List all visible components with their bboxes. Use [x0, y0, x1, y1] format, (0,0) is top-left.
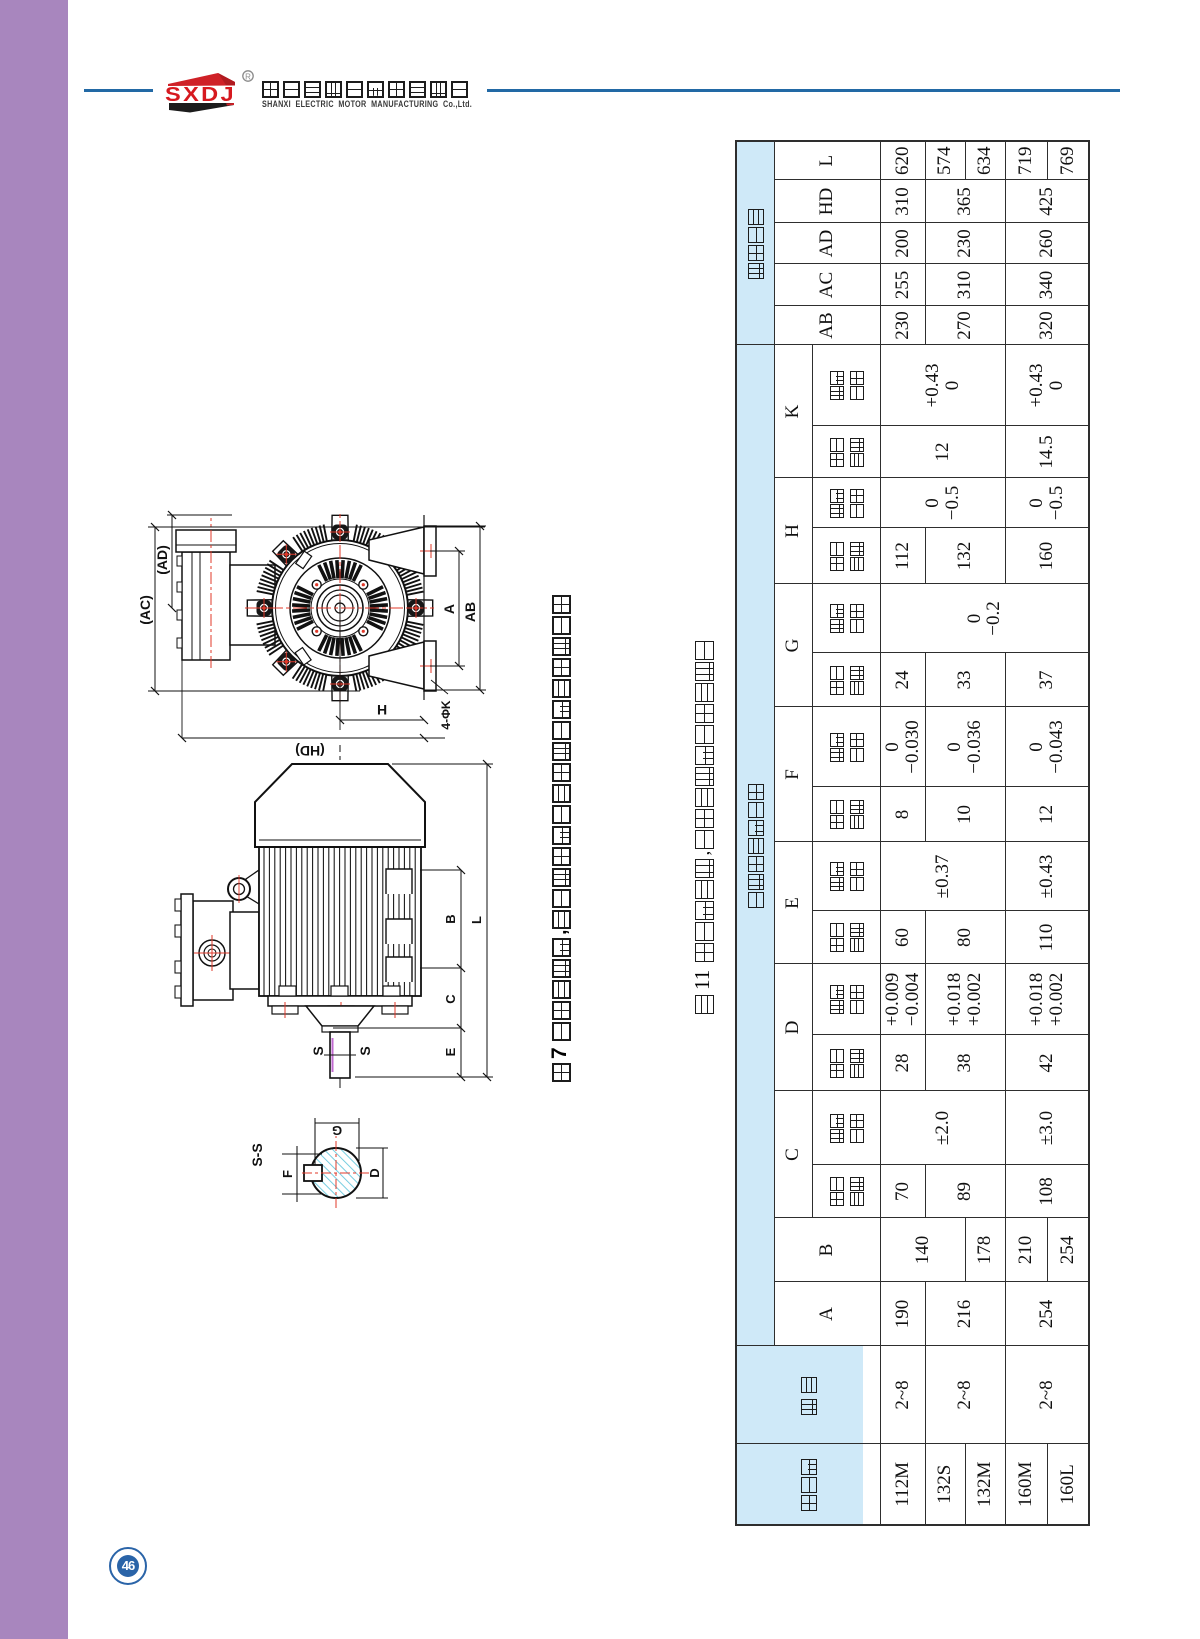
svg-text:S: S	[310, 1046, 326, 1055]
svg-text:R: R	[245, 73, 251, 82]
svg-text:AB: AB	[462, 602, 478, 622]
svg-text:E: E	[443, 1047, 458, 1056]
svg-text:(AC): (AC)	[137, 595, 153, 625]
svg-text:SXDJ: SXDJ	[165, 84, 236, 106]
svg-text:(HD): (HD)	[295, 743, 325, 759]
svg-text:S: S	[357, 1046, 373, 1055]
svg-text:4-ΦK: 4-ΦK	[439, 700, 453, 730]
svg-text:C: C	[443, 994, 458, 1004]
svg-text:L: L	[469, 916, 484, 924]
svg-text:B: B	[443, 914, 458, 923]
svg-text:A: A	[441, 604, 457, 614]
svg-text:S-S: S-S	[249, 1143, 265, 1166]
svg-text:D: D	[367, 1168, 382, 1177]
svg-text:F: F	[280, 1170, 295, 1178]
svg-text:H: H	[377, 702, 387, 718]
svg-text:G: G	[332, 1123, 342, 1138]
svg-text:(AD): (AD)	[154, 545, 170, 575]
